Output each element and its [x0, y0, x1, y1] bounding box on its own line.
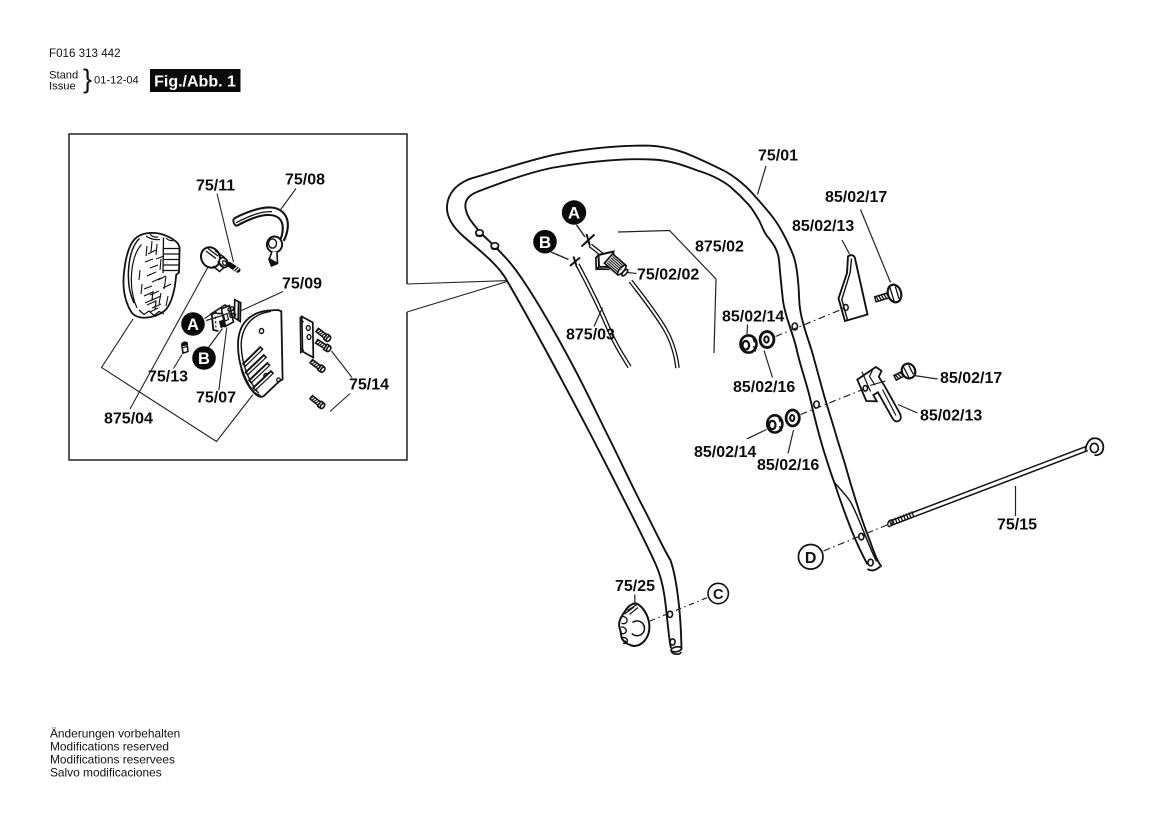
svg-text:875/04: 875/04	[104, 411, 153, 428]
svg-text:75/11: 75/11	[196, 178, 235, 195]
svg-text:85/02/17: 85/02/17	[825, 189, 887, 206]
svg-text:75/07: 75/07	[196, 390, 236, 407]
svg-text:85/02/13: 85/02/13	[920, 408, 982, 425]
svg-text:75/25: 75/25	[615, 578, 655, 595]
svg-text:75/15: 75/15	[997, 517, 1037, 534]
svg-text:A: A	[187, 316, 199, 334]
svg-text:01-12-04: 01-12-04	[94, 75, 139, 87]
svg-text:75/02/02: 75/02/02	[637, 267, 699, 284]
svg-text:}: }	[83, 64, 92, 94]
svg-text:B: B	[198, 350, 210, 368]
svg-text:85/02/16: 85/02/16	[733, 379, 795, 396]
svg-text:85/02/16: 85/02/16	[757, 457, 819, 474]
svg-text:D: D	[805, 550, 817, 567]
svg-text:85/02/14: 85/02/14	[694, 444, 756, 461]
svg-text:Modifications reservees: Modifications reservees	[50, 753, 175, 767]
svg-text:875/02: 875/02	[695, 239, 744, 256]
svg-text:75/08: 75/08	[285, 172, 325, 189]
svg-text:Salvo modificaciones: Salvo modificaciones	[50, 766, 162, 780]
svg-text:75/09: 75/09	[282, 276, 322, 293]
svg-text:B: B	[539, 233, 551, 252]
svg-text:Modifications reserved: Modifications reserved	[50, 740, 169, 754]
svg-text:Issue: Issue	[49, 81, 76, 93]
svg-text:85/02/13: 85/02/13	[792, 218, 854, 235]
svg-text:75/14: 75/14	[349, 377, 389, 394]
svg-text:A: A	[568, 204, 580, 223]
svg-text:875/03: 875/03	[566, 327, 615, 344]
svg-text:C: C	[713, 587, 724, 603]
svg-text:Änderungen vorbehalten: Änderungen vorbehalten	[50, 727, 180, 741]
svg-text:85/02/14: 85/02/14	[722, 309, 784, 326]
svg-text:75/13: 75/13	[148, 369, 188, 386]
svg-text:F016 313 442: F016 313 442	[49, 47, 121, 60]
svg-text:75/01: 75/01	[758, 148, 798, 165]
svg-text:85/02/17: 85/02/17	[940, 370, 1002, 387]
svg-text:Fig./Abb. 1: Fig./Abb. 1	[154, 74, 236, 91]
